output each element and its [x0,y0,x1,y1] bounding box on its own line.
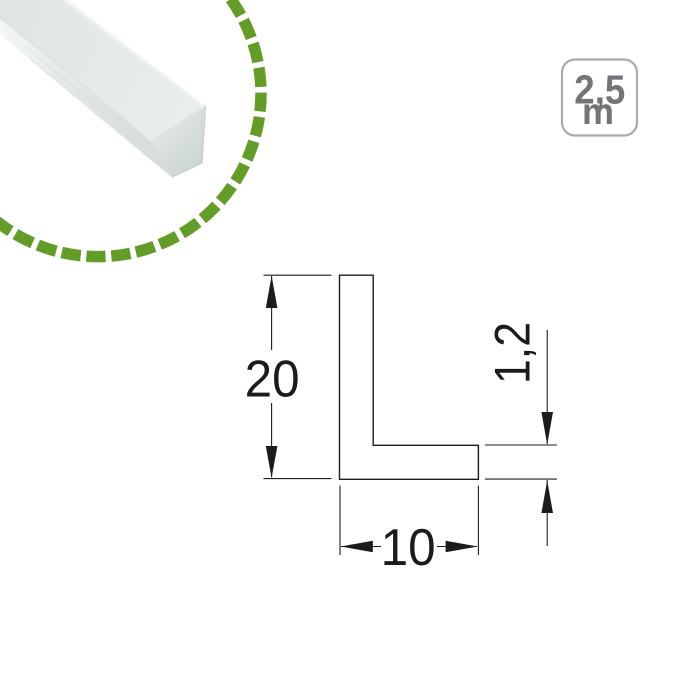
svg-text:20: 20 [245,351,300,409]
svg-text:10: 10 [381,519,436,577]
svg-text:1,2: 1,2 [484,322,541,384]
svg-text:m: m [582,91,614,132]
